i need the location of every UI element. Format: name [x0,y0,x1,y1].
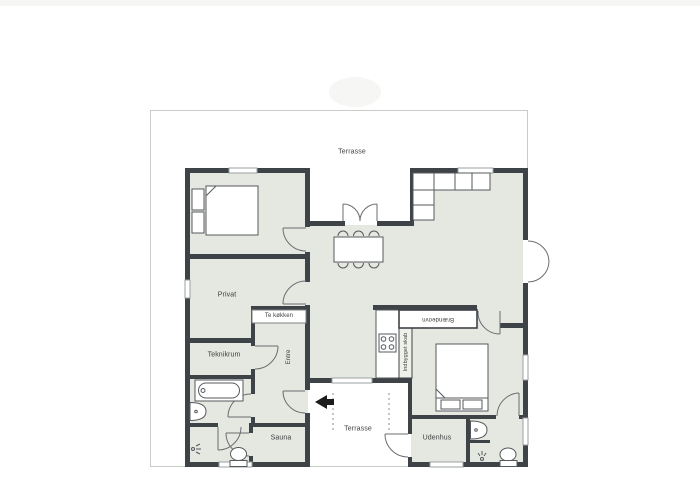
room-label-terrace-top: Terrasse [338,149,366,156]
nightstand-icon [192,212,204,233]
window-icon [523,418,528,445]
bed-icon [192,186,258,235]
bathtub-icon [195,380,243,401]
window-icon [458,168,493,173]
door-opening [523,240,528,283]
room-label-udenhus: Udenhus [423,435,452,442]
window-icon [430,462,463,467]
label-built-in-closet: Indbygget skab [403,333,409,372]
room-label-privat: Privat [218,292,237,299]
room-label-sauna: Sauna [271,435,292,442]
bed-icon [436,344,488,411]
nightstand-icon [192,189,204,210]
room-label-terrace-bottom: Terrasse [344,426,372,433]
room-label-teknikrum: Teknikrum [208,352,241,359]
window-icon [185,280,190,298]
toilet-icon [230,448,247,467]
room-label-tea-kitchen: Te køkken [265,313,293,319]
window-icon [523,355,528,380]
door-arc-double-door-east [528,241,549,282]
toilet-icon [500,448,517,467]
kitchen-counter [376,310,399,378]
room-label-entre: Entre [286,350,292,365]
dining-table-icon [334,231,383,268]
background-smudge [329,77,381,107]
window-icon [332,378,372,383]
label-wood-stove: Brændeovn [422,316,454,322]
window-icon [229,168,257,173]
floor-plan-page: Terrasse Privat Te køkken Teknikrum Entr… [0,0,700,500]
